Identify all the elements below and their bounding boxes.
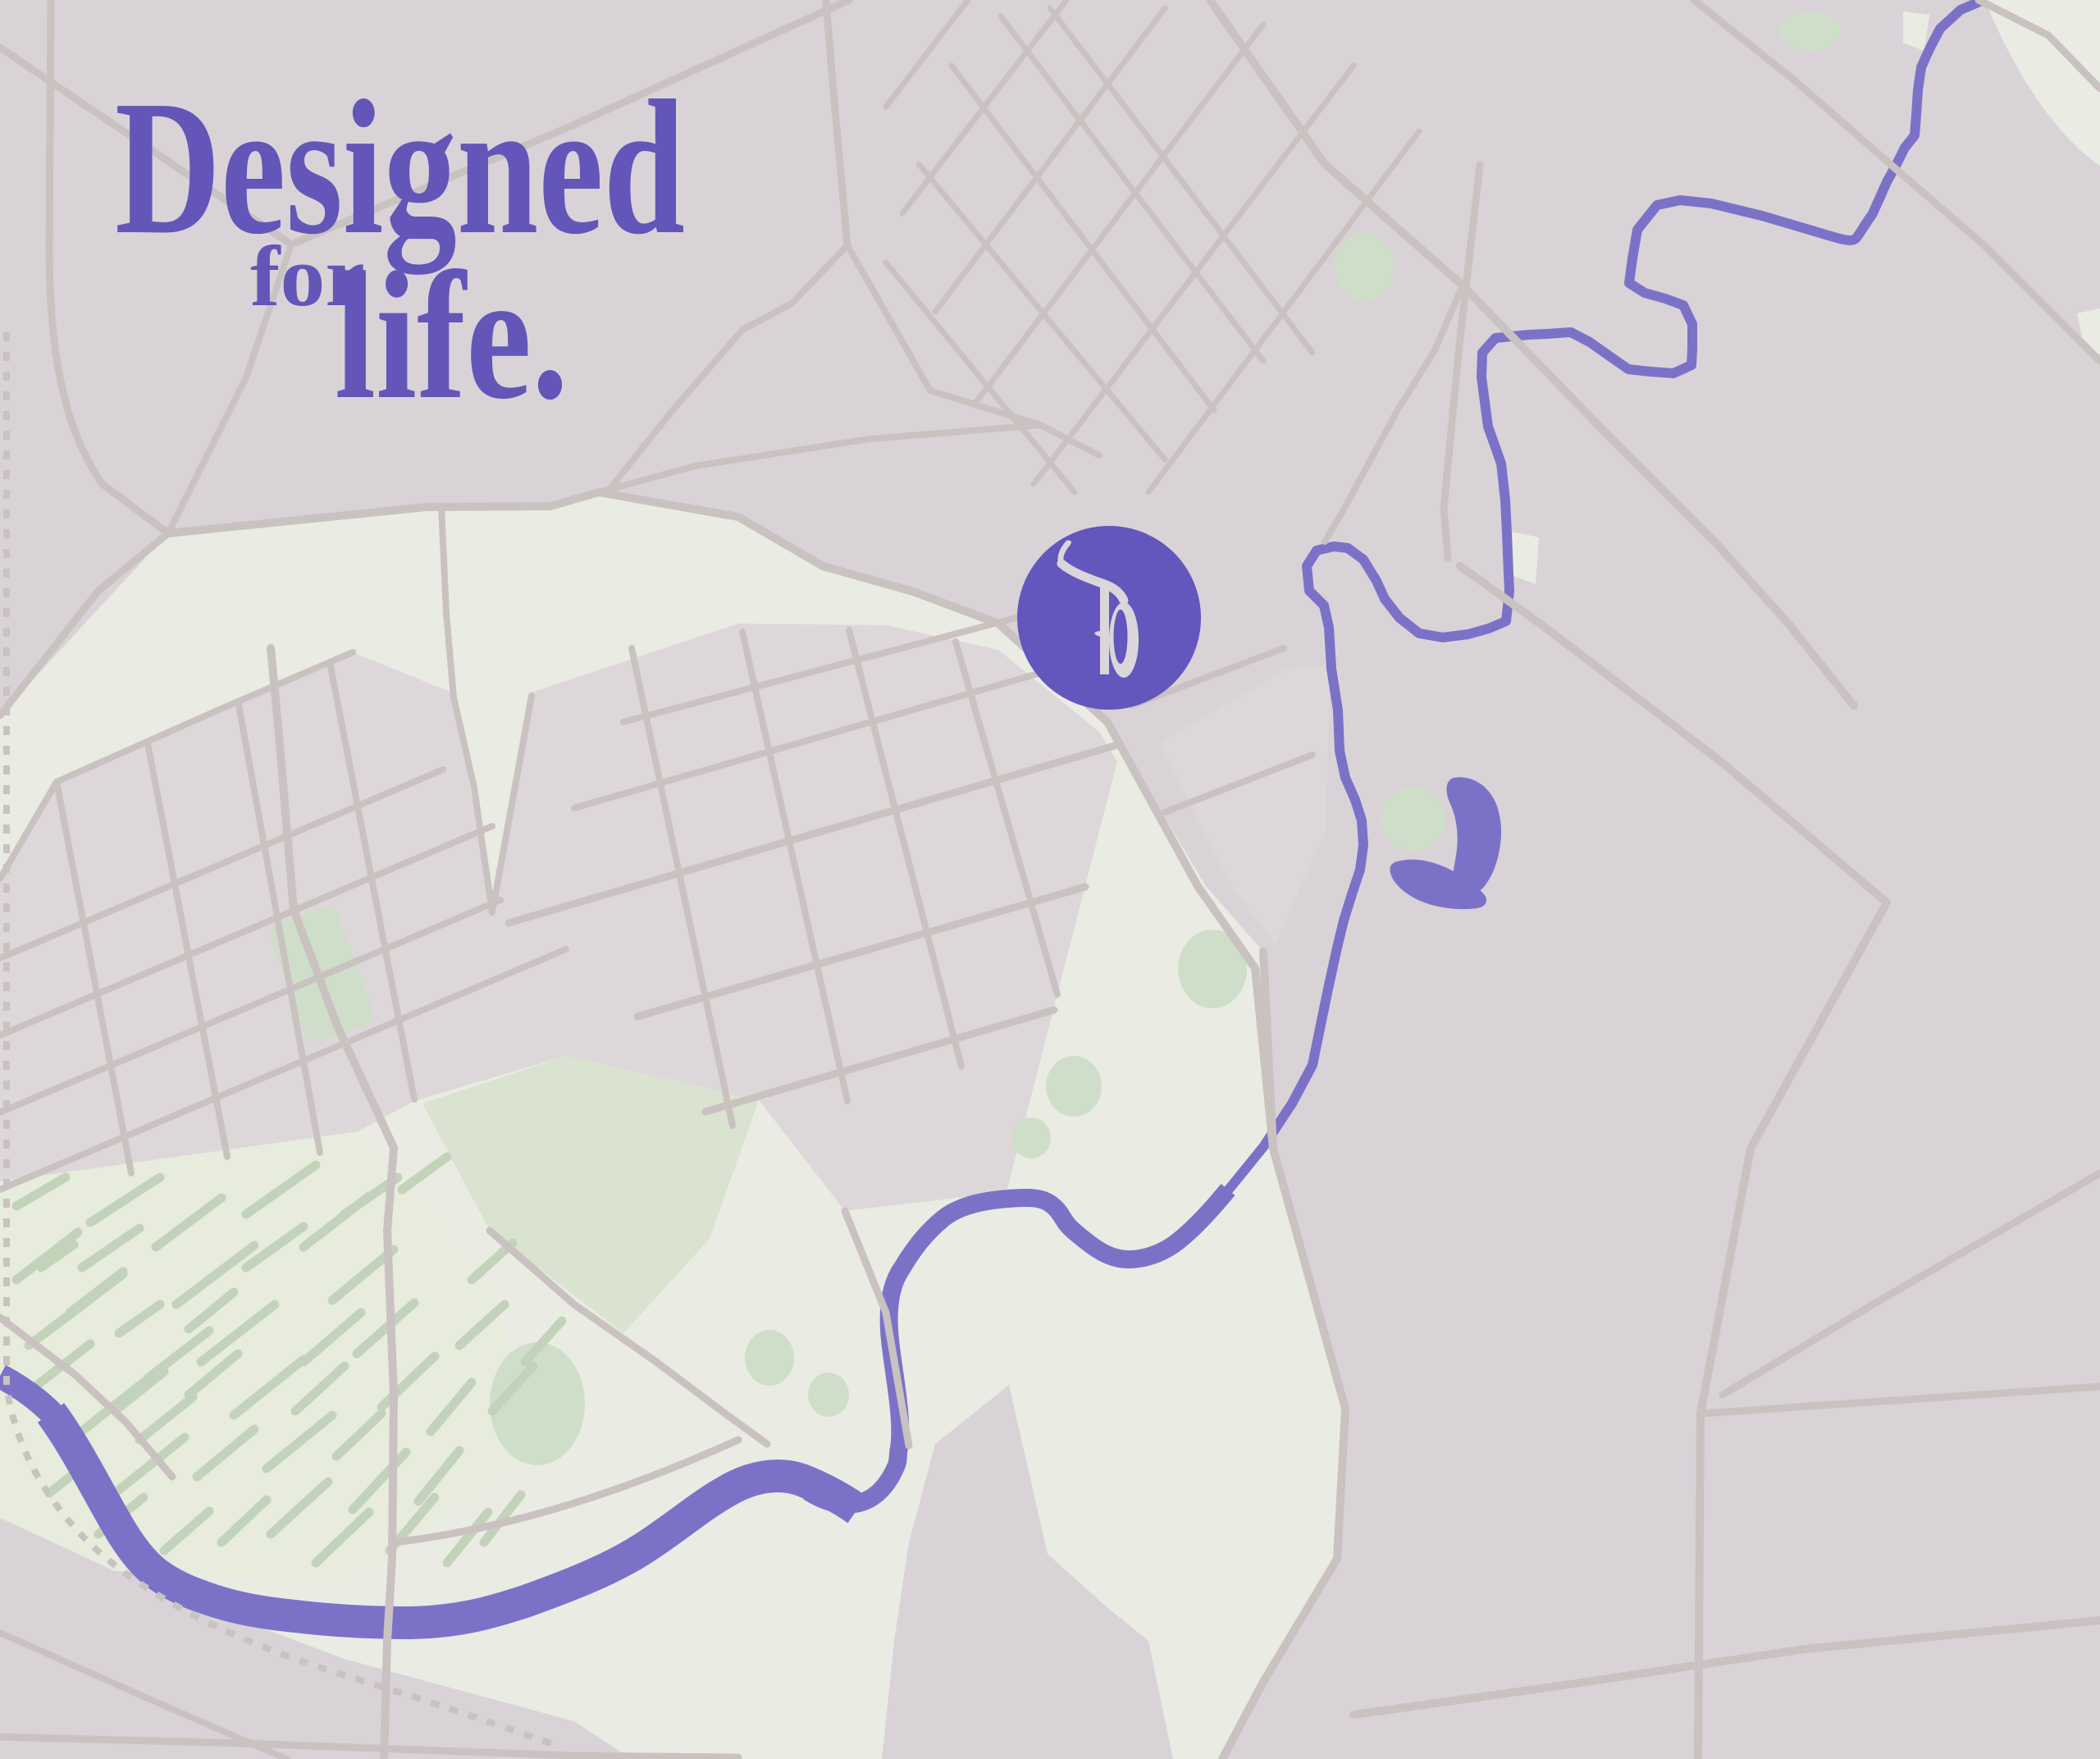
svg-text:life.: life. xyxy=(335,235,568,437)
